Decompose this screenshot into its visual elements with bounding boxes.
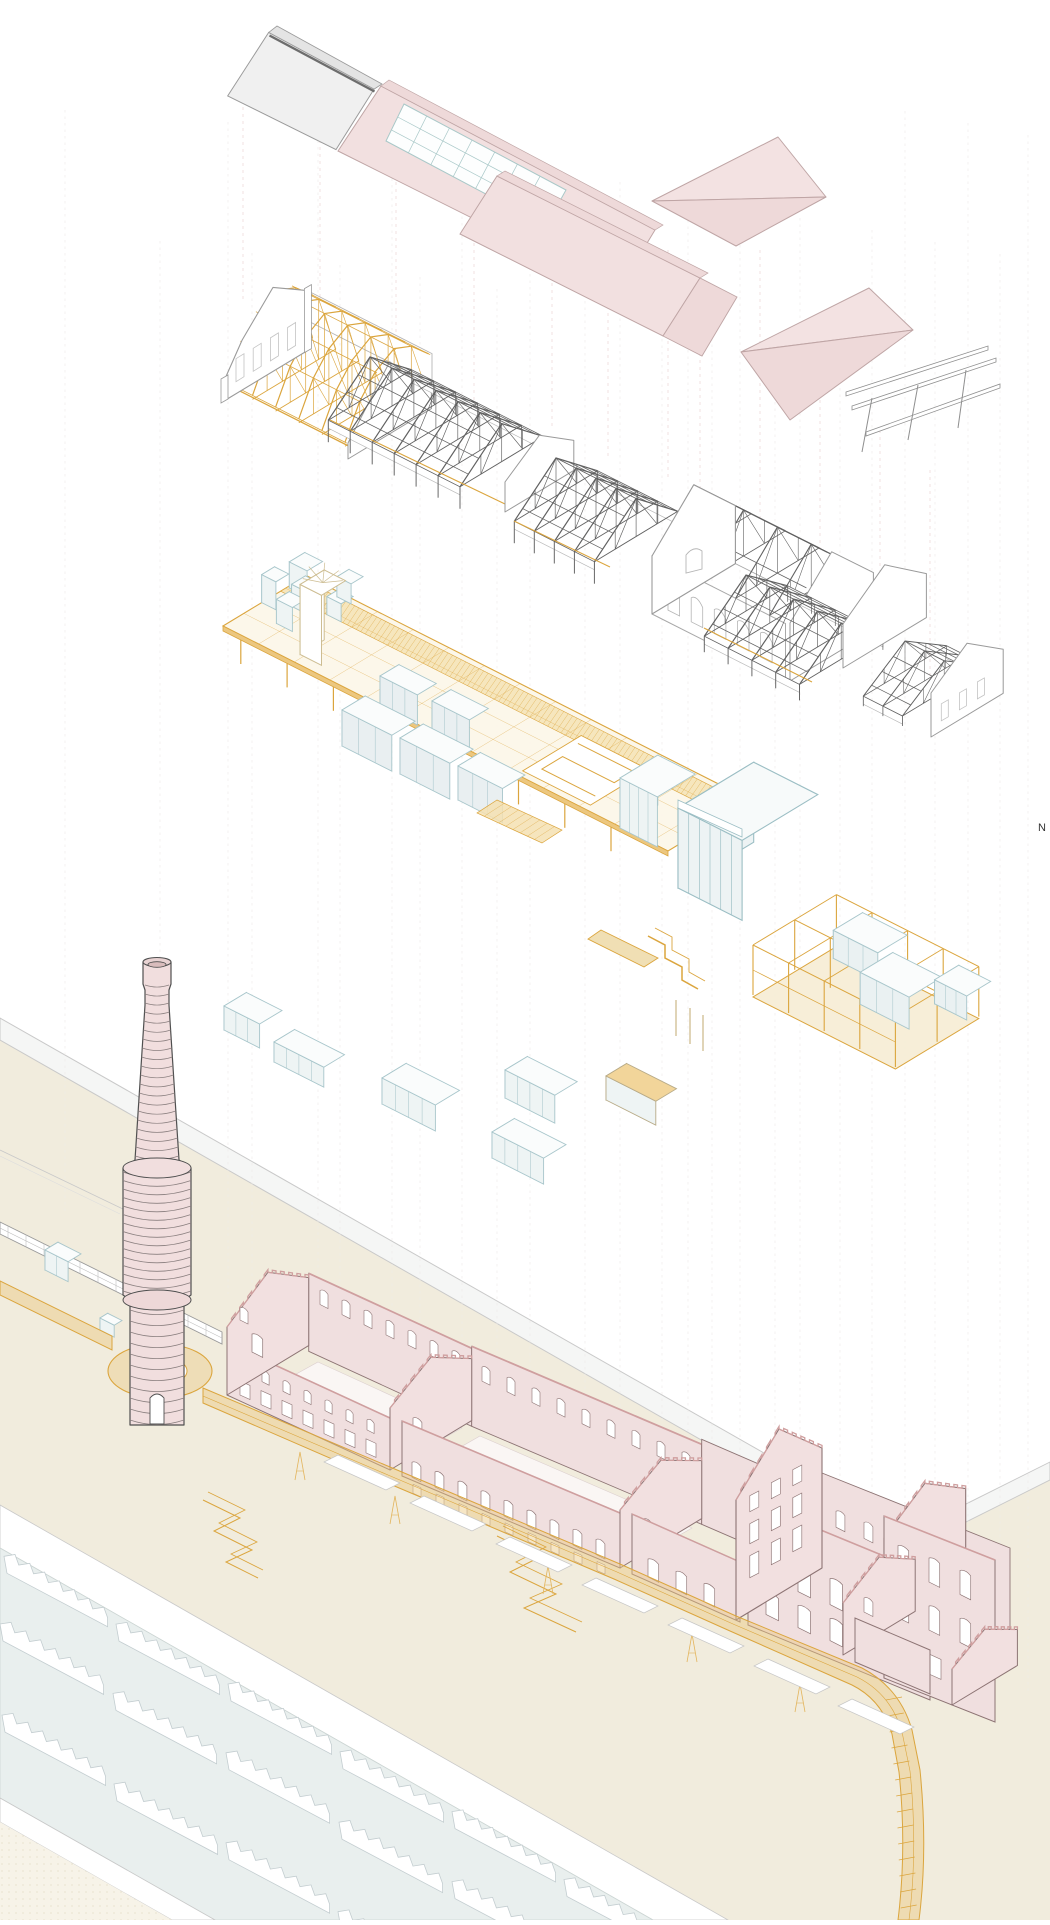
svg-text:N: N (1038, 822, 1046, 834)
